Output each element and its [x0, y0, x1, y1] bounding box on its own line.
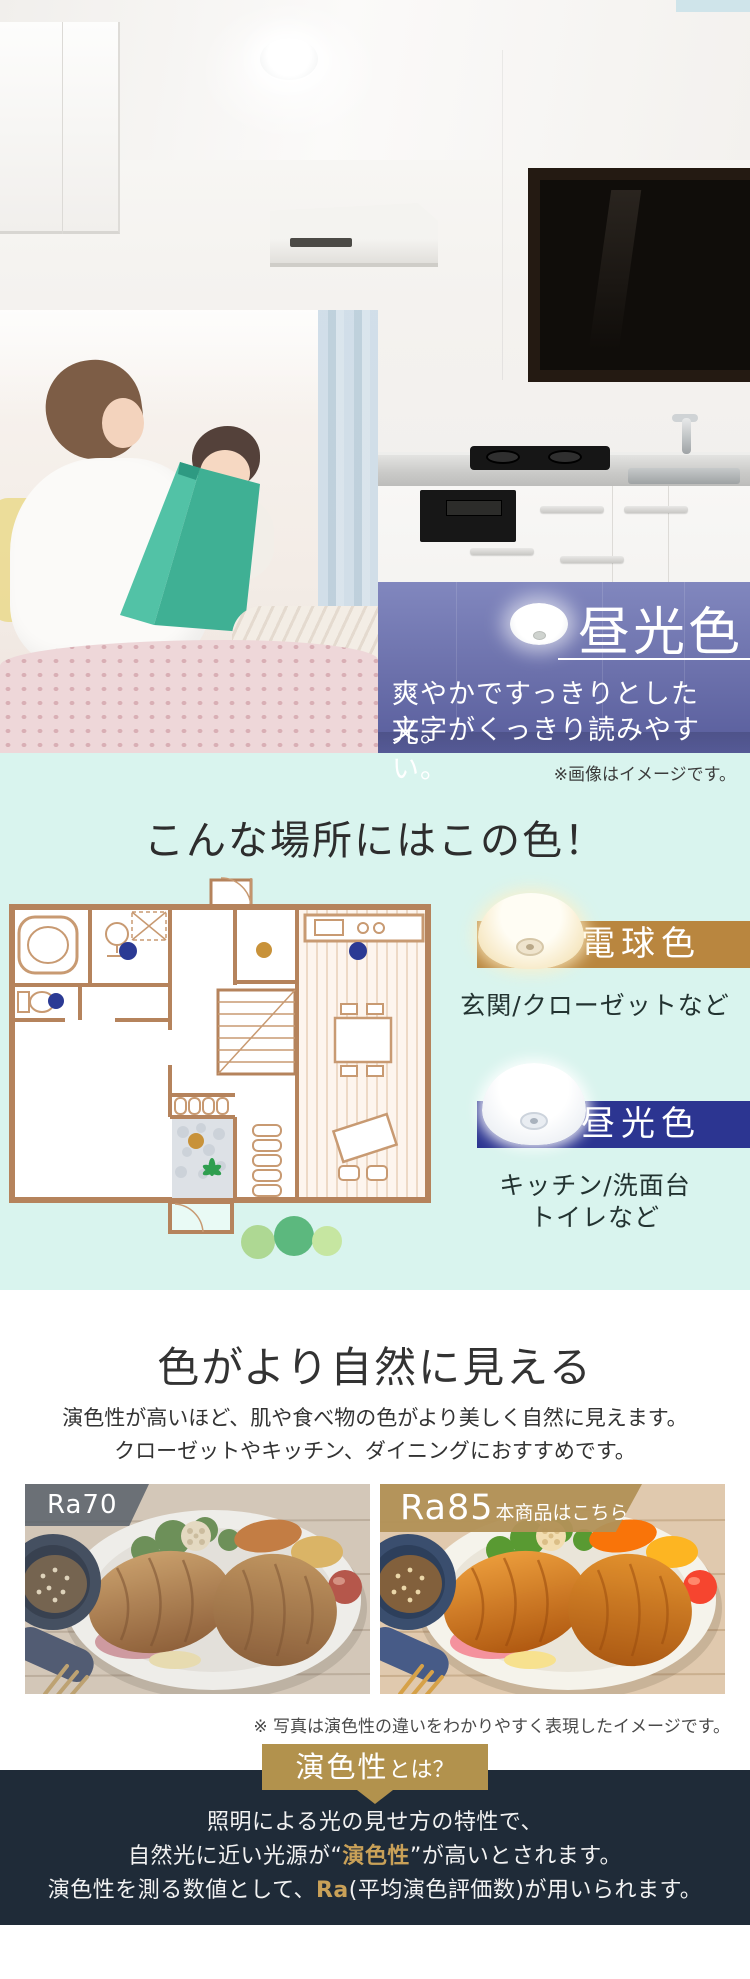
faucet: [682, 418, 691, 454]
dotted-blanket: [0, 640, 378, 753]
ra70-label: Ra70: [25, 1484, 149, 1526]
wall-cabinet: [0, 22, 120, 234]
ra-highlight: Ra: [316, 1878, 349, 1903]
ra85-value: Ra85: [400, 1488, 494, 1528]
kitchen-sink: [628, 468, 740, 484]
ra70-photo: Ra70: [25, 1484, 370, 1694]
hero-color-label: 昼光色: [578, 590, 750, 665]
badge-pointer: [357, 1790, 393, 1804]
stove-burner: [486, 450, 520, 464]
drawer-handle: [470, 548, 534, 555]
rendering-desc-line2: クローゼットやキッチン、ダイニングにおすすめです。: [114, 1439, 636, 1463]
bulb-color-label: 電球色: [581, 921, 701, 968]
daylight-caption-line2: トイレなど: [440, 1198, 750, 1234]
product-page-banner: 昼光色 爽やかですっきりとした光。 文字がくっきり読みやすい。 ※画像はイメージ…: [0, 0, 750, 1979]
wall-corner-line: [502, 50, 503, 380]
stove-burner: [548, 450, 582, 464]
photo-disclaimer: ※ 写真は演色性の違いをわかりやすく表現したイメージです。: [0, 1712, 730, 1737]
ceiling-light: [260, 38, 318, 80]
glossary-text: 照明による光の見せ方の特性で、 自然光に近い光源が“演色性”が高いとされます。 …: [0, 1806, 750, 1908]
cabinet-seam: [668, 486, 669, 582]
daylight-color-banner: 昼光色 爽やかですっきりとした光。 文字がくっきり読みやすい。: [378, 582, 750, 753]
title-underline: [558, 658, 750, 660]
rendering-desc-line1: 演色性が高いほど、肌や食べ物の色がより美しく自然に見えます。: [62, 1406, 687, 1430]
range-hood-vent: [290, 238, 352, 247]
glossary-line3: 演色性を測る数値として、Ra(平均演色評価数)が用いられます。: [48, 1878, 703, 1903]
grill-window: [446, 500, 502, 516]
cool-sensor-dot: [530, 1118, 538, 1124]
ra85-note: 本商品はこちら: [496, 1502, 629, 1524]
glossary-line1: 照明による光の見せ方の特性で、: [207, 1810, 543, 1835]
drawer-handle: [540, 506, 604, 513]
ra85-photo: Ra85本商品はこちら: [380, 1484, 725, 1694]
badge-suffix: とは？: [389, 1758, 455, 1783]
image-disclaimer: ※画像はイメージです。: [0, 760, 736, 785]
window-strip: [676, 0, 750, 12]
rendering-heading: 色がより自然に見える: [0, 1334, 750, 1395]
placement-heading: こんな場所にはこの色！: [0, 808, 750, 866]
warm-sensor-dot: [526, 944, 534, 950]
cabinet-seam: [612, 486, 613, 582]
drawer-handle: [560, 556, 624, 563]
motion-sensor-icon: [533, 631, 546, 640]
cabinet-seam: [62, 22, 63, 234]
badge-term: 演色性: [295, 1750, 388, 1784]
daylight-caption-line1: キッチン/洗面台: [440, 1166, 750, 1202]
rendering-description: 演色性が高いほど、肌や食べ物の色がより美しく自然に見えます。 クローゼットやキッ…: [0, 1402, 750, 1468]
range-hood: [270, 203, 438, 267]
mother-face: [102, 398, 144, 448]
floor-plan: [5, 870, 435, 1262]
built-in-grill: [420, 490, 516, 542]
drawer-handle: [624, 506, 688, 513]
glossary-badge: 演色性とは？: [262, 1744, 488, 1790]
family-reading-photo: [0, 310, 378, 753]
ra85-label: Ra85本商品はこちら: [380, 1484, 642, 1532]
glossary-line2: 自然光に近い光源が“演色性”が高いとされます。: [128, 1844, 622, 1869]
term-highlight: 演色性: [342, 1844, 410, 1869]
bulb-color-caption: 玄関/クローゼットなど: [440, 986, 750, 1022]
daylight-color-label: 昼光色: [581, 1101, 701, 1148]
